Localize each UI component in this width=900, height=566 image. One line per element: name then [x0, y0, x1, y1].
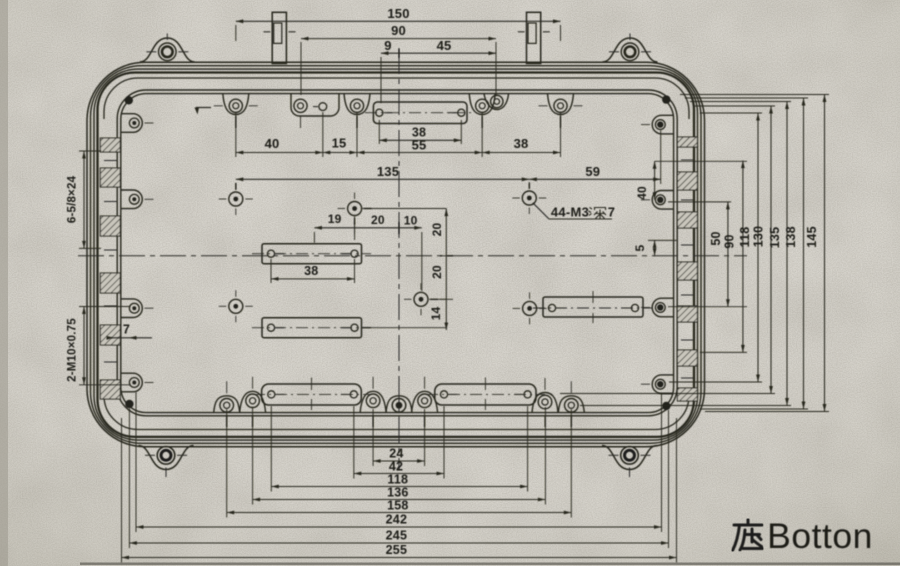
svg-text:40: 40 — [635, 186, 649, 200]
svg-text:20: 20 — [430, 265, 444, 279]
svg-text:255: 255 — [386, 543, 407, 557]
svg-text:38: 38 — [514, 136, 529, 151]
svg-text:14: 14 — [429, 307, 443, 321]
svg-text:158: 158 — [387, 499, 408, 513]
svg-text:20: 20 — [371, 213, 385, 227]
svg-text:145: 145 — [805, 226, 819, 247]
svg-text:59: 59 — [585, 164, 600, 179]
svg-text:242: 242 — [386, 513, 407, 527]
svg-text:118: 118 — [738, 227, 752, 248]
svg-text:50: 50 — [709, 231, 723, 245]
svg-text:5: 5 — [633, 244, 647, 251]
svg-text:138: 138 — [784, 226, 798, 247]
svg-text:90: 90 — [722, 234, 736, 248]
svg-text:20: 20 — [430, 223, 444, 237]
svg-text:10: 10 — [404, 214, 418, 228]
svg-text:135: 135 — [768, 227, 782, 248]
svg-text:2-M10×0.75: 2-M10×0.75 — [67, 318, 79, 382]
svg-text:136: 136 — [387, 486, 408, 500]
svg-text:7: 7 — [123, 323, 130, 337]
svg-text:Botton: Botton — [767, 516, 873, 556]
svg-text:7: 7 — [608, 205, 615, 220]
svg-text:118: 118 — [387, 473, 408, 487]
svg-text:19: 19 — [328, 212, 342, 226]
svg-text:9: 9 — [384, 38, 391, 53]
svg-text:42: 42 — [389, 460, 403, 474]
svg-text:24: 24 — [389, 447, 403, 461]
svg-text:45: 45 — [437, 38, 452, 53]
svg-text:15: 15 — [332, 136, 347, 151]
svg-text:40: 40 — [265, 136, 280, 151]
svg-text:6-5/8×24: 6-5/8×24 — [67, 175, 79, 223]
svg-text:38: 38 — [412, 126, 426, 140]
svg-text:44-M3: 44-M3 — [551, 205, 589, 220]
svg-text:55: 55 — [412, 138, 427, 153]
svg-text:130: 130 — [751, 226, 765, 247]
svg-text:150: 150 — [387, 6, 409, 21]
svg-text:90: 90 — [391, 23, 406, 38]
svg-text:38: 38 — [304, 264, 318, 278]
svg-text:245: 245 — [386, 529, 407, 543]
svg-text:135: 135 — [377, 164, 399, 179]
